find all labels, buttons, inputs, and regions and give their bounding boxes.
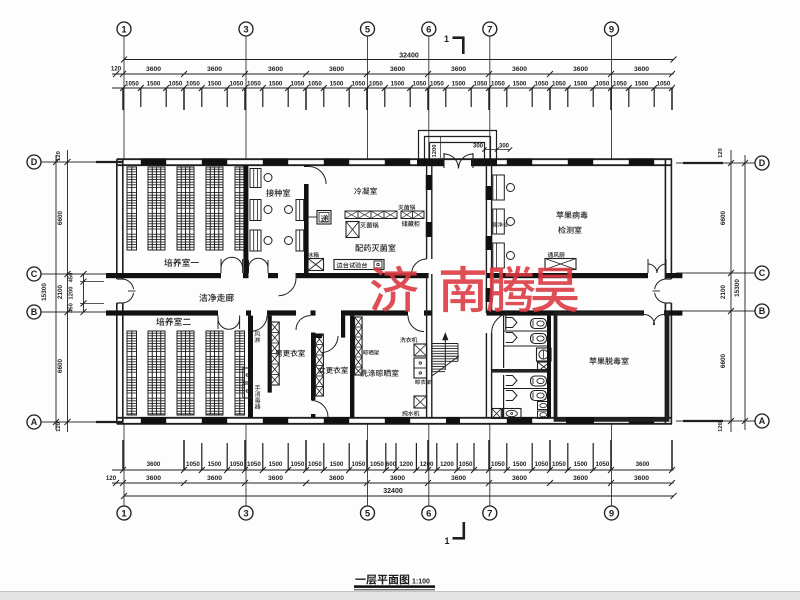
svg-text:1050: 1050: [552, 461, 566, 468]
svg-text:1050: 1050: [169, 81, 183, 88]
svg-text:1050: 1050: [535, 461, 549, 468]
svg-text:1050: 1050: [247, 461, 261, 468]
svg-text:3600: 3600: [207, 475, 222, 482]
svg-text:1500: 1500: [269, 81, 283, 88]
svg-text:1500: 1500: [391, 81, 405, 88]
svg-text:1:100: 1:100: [412, 579, 430, 586]
svg-text:3600: 3600: [268, 66, 283, 73]
svg-text:1050: 1050: [186, 461, 200, 468]
svg-text:1: 1: [121, 24, 127, 35]
svg-text:1050: 1050: [125, 81, 139, 88]
svg-text:7: 7: [487, 508, 492, 519]
svg-text:1050: 1050: [230, 461, 244, 468]
svg-text:300: 300: [473, 144, 484, 150]
svg-text:1500: 1500: [330, 81, 344, 88]
svg-text:1050: 1050: [596, 461, 610, 468]
svg-text:D: D: [759, 158, 766, 168]
svg-text:1200: 1200: [420, 461, 434, 468]
svg-text:1050: 1050: [247, 81, 261, 88]
svg-text:450: 450: [69, 273, 75, 283]
svg-text:1050: 1050: [352, 461, 366, 468]
svg-text:3600: 3600: [329, 66, 344, 73]
svg-text:1500: 1500: [513, 81, 527, 88]
svg-text:A: A: [759, 416, 766, 426]
svg-text:1050: 1050: [491, 461, 505, 468]
svg-text:6600: 6600: [720, 353, 727, 368]
svg-text:3600: 3600: [451, 66, 466, 73]
svg-text:5: 5: [365, 24, 371, 35]
svg-text:120: 120: [106, 475, 117, 482]
svg-text:6600: 6600: [720, 210, 727, 225]
svg-text:3600: 3600: [634, 66, 649, 73]
svg-text:7: 7: [487, 24, 492, 35]
svg-text:6600: 6600: [57, 210, 64, 225]
svg-text:1050: 1050: [474, 81, 488, 88]
svg-text:1500: 1500: [574, 81, 588, 88]
svg-text:1200: 1200: [432, 145, 438, 158]
svg-text:1: 1: [121, 508, 127, 519]
svg-text:3600: 3600: [634, 475, 649, 482]
svg-text:3600: 3600: [146, 66, 161, 73]
svg-text:3600: 3600: [390, 475, 405, 482]
svg-text:3600: 3600: [636, 461, 650, 468]
svg-text:32400: 32400: [399, 53, 419, 60]
svg-text:3600: 3600: [268, 475, 283, 482]
svg-text:3600: 3600: [512, 475, 527, 482]
svg-text:1050: 1050: [308, 81, 322, 88]
svg-text:120: 120: [111, 66, 122, 73]
svg-text:6: 6: [426, 508, 431, 519]
svg-text:1050: 1050: [552, 81, 566, 88]
svg-text:1500: 1500: [452, 81, 466, 88]
svg-text:1500: 1500: [513, 461, 527, 468]
svg-text:2100: 2100: [720, 284, 727, 299]
svg-text:1050: 1050: [596, 81, 610, 88]
svg-text:3600: 3600: [390, 66, 405, 73]
svg-text:3600: 3600: [451, 475, 466, 482]
svg-text:15300: 15300: [41, 283, 48, 301]
svg-text:3600: 3600: [573, 475, 588, 482]
svg-text:1: 1: [444, 34, 449, 44]
svg-text:1050: 1050: [613, 81, 627, 88]
svg-text:300: 300: [499, 144, 510, 150]
svg-text:1500: 1500: [330, 461, 344, 468]
svg-text:3: 3: [243, 508, 248, 519]
svg-text:1500: 1500: [269, 461, 283, 468]
svg-text:B: B: [759, 306, 766, 316]
svg-text:120: 120: [718, 422, 724, 432]
svg-text:1050: 1050: [430, 81, 444, 88]
svg-text:1050: 1050: [230, 81, 244, 88]
svg-text:3600: 3600: [207, 66, 222, 73]
svg-text:6: 6: [426, 24, 431, 35]
svg-text:120: 120: [718, 148, 724, 158]
svg-text:1200: 1200: [69, 287, 75, 300]
svg-text:32400: 32400: [383, 488, 403, 495]
svg-text:9: 9: [609, 24, 614, 35]
svg-text:6600: 6600: [57, 358, 64, 373]
svg-text:3600: 3600: [512, 66, 527, 73]
svg-text:1050: 1050: [186, 81, 200, 88]
svg-text:120: 120: [56, 422, 62, 432]
svg-text:3600: 3600: [573, 66, 588, 73]
svg-text:1050: 1050: [459, 461, 473, 468]
svg-text:B: B: [31, 307, 38, 317]
svg-text:3600: 3600: [329, 475, 344, 482]
svg-text:120: 120: [56, 151, 62, 161]
svg-text:2100: 2100: [57, 284, 64, 299]
svg-text:600: 600: [386, 461, 397, 468]
svg-text:3600: 3600: [146, 475, 161, 482]
svg-text:C: C: [31, 269, 38, 279]
svg-text:C: C: [759, 268, 766, 278]
svg-text:1200: 1200: [399, 461, 413, 468]
svg-text:1200: 1200: [440, 461, 454, 468]
svg-text:1500: 1500: [147, 81, 161, 88]
svg-text:1050: 1050: [291, 461, 305, 468]
svg-text:1050: 1050: [370, 461, 384, 468]
svg-text:1050: 1050: [308, 461, 322, 468]
svg-text:1500: 1500: [574, 461, 588, 468]
svg-text:3600: 3600: [147, 461, 161, 468]
svg-text:450: 450: [69, 303, 75, 313]
svg-text:1: 1: [444, 536, 449, 546]
svg-text:15300: 15300: [734, 279, 741, 297]
svg-text:1050: 1050: [291, 81, 305, 88]
svg-text:1050: 1050: [491, 81, 505, 88]
svg-text:3: 3: [243, 24, 248, 35]
svg-text:D: D: [31, 157, 38, 167]
svg-text:1500: 1500: [208, 81, 222, 88]
svg-text:1050: 1050: [369, 81, 383, 88]
svg-text:5: 5: [365, 508, 371, 519]
svg-text:9: 9: [609, 508, 614, 519]
svg-text:1500: 1500: [208, 461, 222, 468]
svg-text:1050: 1050: [413, 81, 427, 88]
svg-text:A: A: [31, 417, 38, 427]
svg-text:1500: 1500: [635, 81, 649, 88]
svg-text:1050: 1050: [352, 81, 366, 88]
svg-text:1050: 1050: [657, 81, 671, 88]
svg-text:1050: 1050: [535, 81, 549, 88]
